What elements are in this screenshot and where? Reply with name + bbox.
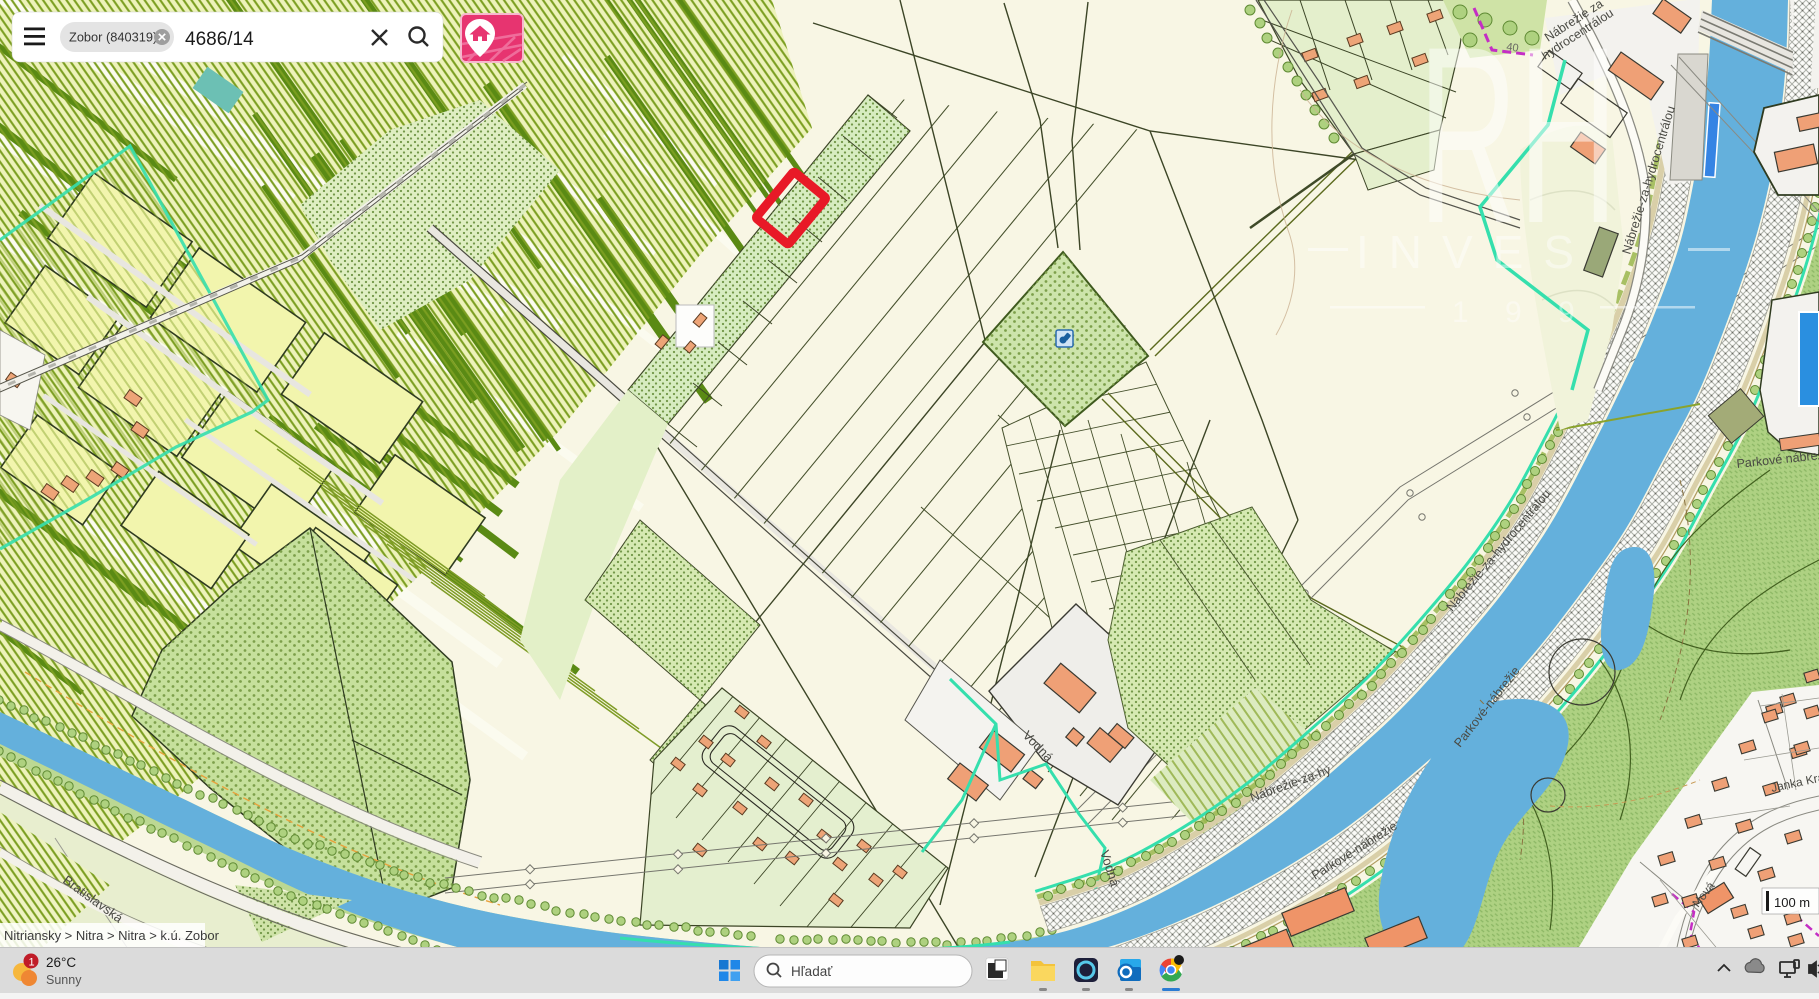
svg-text:Zobor (840319): Zobor (840319) <box>69 30 157 45</box>
svg-text:Hľadať: Hľadať <box>791 964 833 979</box>
svg-text:4686/14: 4686/14 <box>185 29 254 50</box>
svg-text:100 m: 100 m <box>1774 895 1810 910</box>
svg-text:1: 1 <box>29 957 35 969</box>
svg-text:INVES: INVES <box>1356 226 1594 278</box>
svg-text:1 9 9: 1 9 9 <box>1452 296 1589 329</box>
svg-text:Sunny: Sunny <box>46 973 82 987</box>
svg-text:Nitriansky > Nitra > Nitra > k: Nitriansky > Nitra > Nitra > k.ú. Zobor <box>4 928 220 943</box>
svg-text:26°C: 26°C <box>46 955 76 970</box>
